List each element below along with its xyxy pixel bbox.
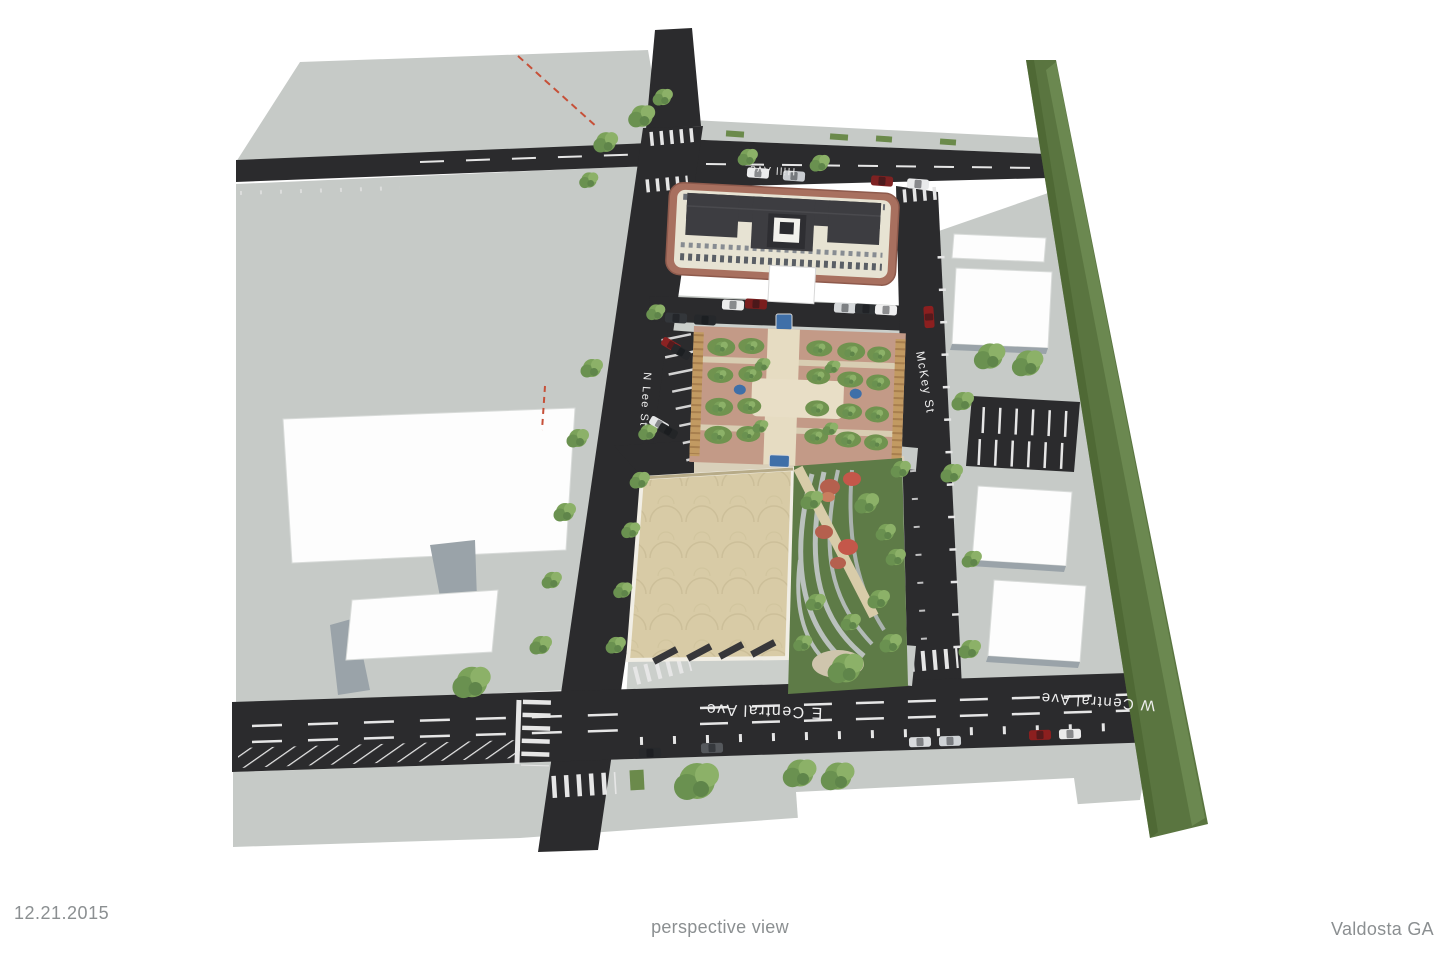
portico-canopy	[768, 265, 816, 303]
street-label-hill-ave: Hill Ave	[748, 163, 795, 177]
entry-fountain	[776, 314, 792, 330]
aerial-site-rendering: Hill Ave N Lee St McKey St E Central Ave…	[0, 0, 1440, 960]
pocket-park	[788, 458, 908, 694]
courthouse-building	[664, 182, 900, 308]
presentation-sheet: Hill Ave N Lee St McKey St E Central Ave…	[0, 0, 1440, 960]
retail-building	[628, 469, 793, 665]
sheet-location: Valdosta GA	[1331, 919, 1434, 940]
sheet-title: perspective view	[0, 917, 1440, 938]
central-plaza-garden	[689, 326, 906, 471]
